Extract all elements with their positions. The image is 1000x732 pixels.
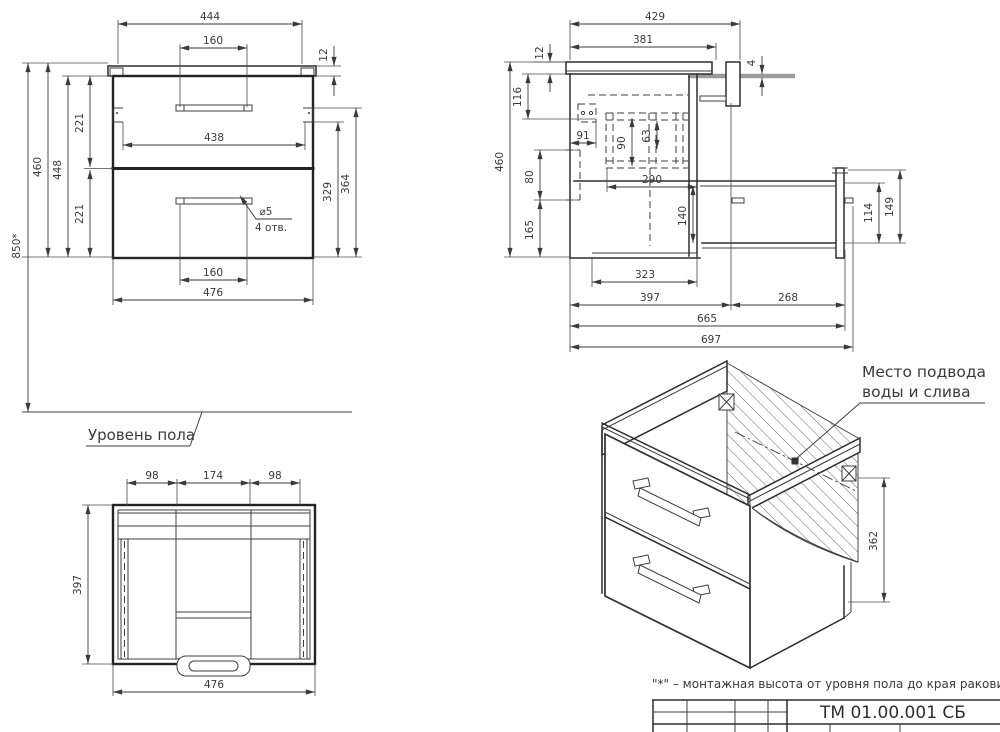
dim-side-268: 268 — [778, 292, 798, 304]
dim-side-114: 114 — [863, 203, 875, 223]
dim-front-476: 476 — [203, 287, 223, 299]
dim-top-174: 174 — [203, 470, 223, 482]
top-view: 98 174 98 397 476 — [72, 470, 315, 696]
dim-front-160-bottom: 160 — [203, 267, 223, 279]
dim-front-221-upper: 221 — [74, 113, 86, 133]
dim-side-12: 12 — [534, 46, 546, 59]
dim-top-98-left: 98 — [145, 470, 158, 482]
hole-count-label: 4 отв. — [255, 222, 287, 234]
water-supply-label-line2: воды и слива — [862, 383, 971, 401]
footnote: "*" – монтажная высота от уровня пола до… — [652, 677, 1000, 691]
dim-front-438: 438 — [204, 132, 224, 144]
front-view: 444 160 12 850* 460 448 221 221 438 329 — [11, 11, 362, 412]
dim-front-221-lower: 221 — [74, 204, 86, 224]
dim-side-323: 323 — [635, 269, 655, 281]
drawing-page: 444 160 12 850* 460 448 221 221 438 329 — [0, 0, 1000, 732]
dim-side-165: 165 — [524, 220, 536, 240]
dim-front-12: 12 — [318, 48, 330, 61]
mount-bracket-left — [719, 394, 734, 410]
dim-side-397: 397 — [640, 292, 660, 304]
dim-side-665: 665 — [697, 313, 717, 325]
dim-side-91: 91 — [576, 130, 589, 142]
dim-side-460: 460 — [494, 152, 506, 172]
hole-diameter-label: ⌀5 — [259, 206, 272, 218]
dim-side-90: 90 — [616, 136, 628, 149]
iso-view: Место подвода воды и слива 362 — [602, 361, 986, 668]
dim-iso-362: 362 — [868, 531, 880, 551]
side-view: 429 381 12 4 116 91 90 63 290 80 165 460 — [494, 11, 906, 352]
dim-side-697: 697 — [701, 334, 721, 346]
dim-side-80: 80 — [524, 170, 536, 183]
title-block: ТМ 01.00.001 СБ — [653, 700, 1000, 732]
dim-front-329: 329 — [322, 182, 334, 202]
dim-front-850: 850* — [11, 233, 23, 258]
drawing-number: ТМ 01.00.001 СБ — [819, 703, 966, 723]
mount-bracket-right — [842, 466, 856, 481]
dim-top-476: 476 — [204, 679, 224, 691]
floor-level: Уровень пола — [22, 412, 352, 446]
dim-front-444: 444 — [200, 11, 220, 23]
dim-side-116: 116 — [512, 87, 524, 107]
dim-side-290: 290 — [642, 174, 662, 186]
dim-side-140: 140 — [677, 206, 689, 226]
dim-front-448: 448 — [52, 160, 64, 180]
technical-drawing: 444 160 12 850* 460 448 221 221 438 329 — [0, 0, 1000, 732]
dim-top-98-right: 98 — [268, 470, 281, 482]
floor-level-label: Уровень пола — [88, 426, 195, 444]
dim-side-149: 149 — [884, 197, 896, 217]
dim-side-429: 429 — [645, 11, 665, 23]
dim-side-63: 63 — [641, 129, 653, 142]
dim-side-4: 4 — [746, 59, 758, 66]
dim-front-460: 460 — [32, 157, 44, 177]
water-supply-label-line1: Место подвода — [862, 363, 986, 381]
dim-front-160-top: 160 — [203, 35, 223, 47]
dim-side-381: 381 — [633, 34, 653, 46]
dim-top-397: 397 — [72, 575, 84, 595]
dim-front-364: 364 — [340, 174, 352, 194]
